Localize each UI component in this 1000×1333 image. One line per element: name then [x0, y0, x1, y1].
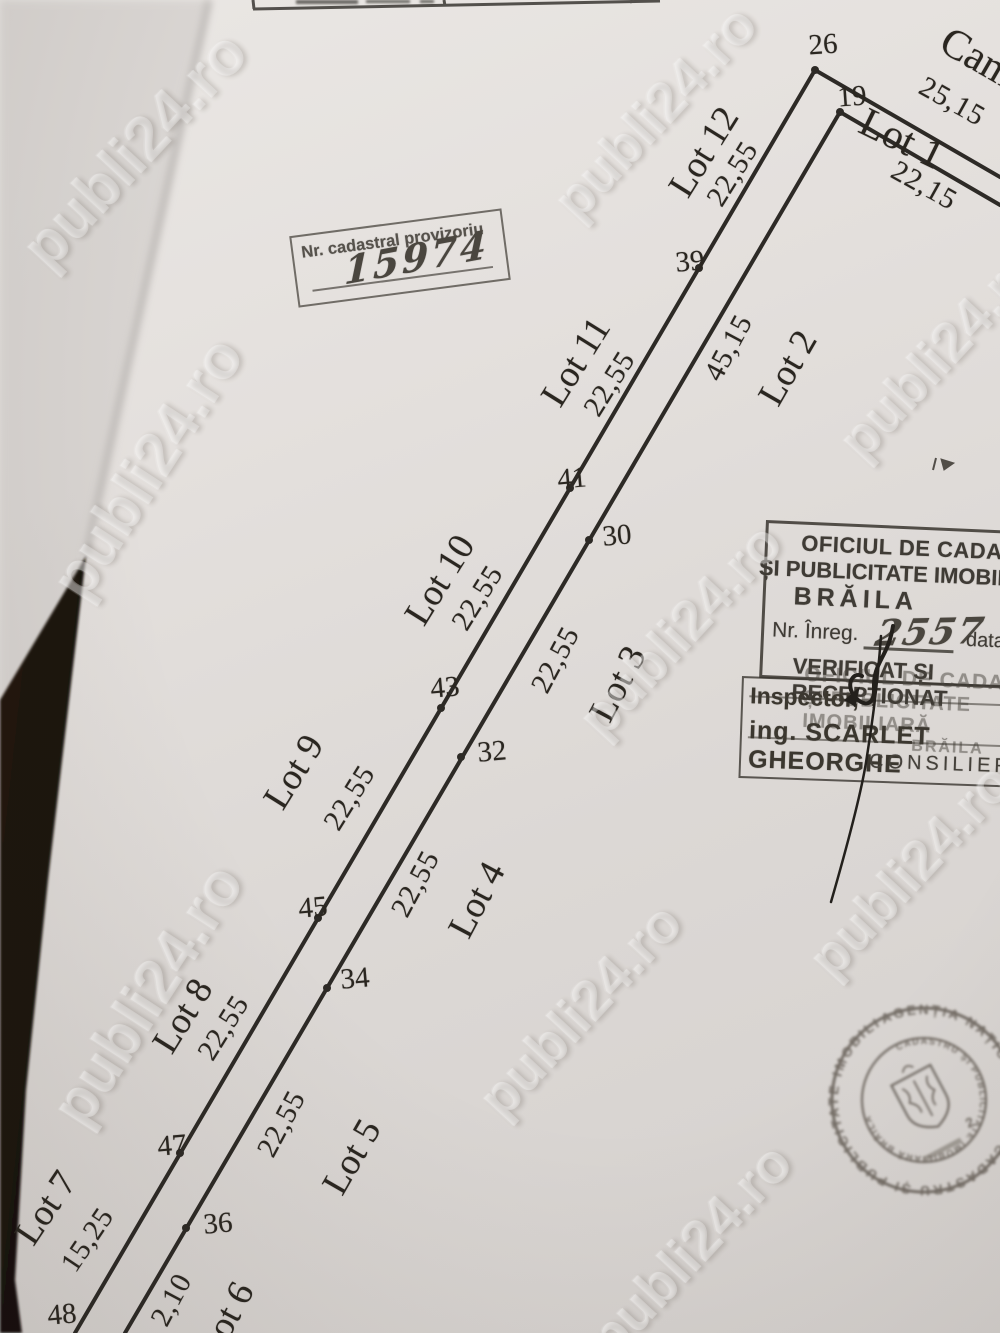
svg-text:AGENȚIA NAȚIONALĂ DE CADASTRU: AGENȚIA NAȚIONALĂ DE CADASTRU ȘI PUBLICI…: [0, 72, 1000, 1333]
round-stamp-outer-text: AGENȚIA NAȚIONALĂ DE CADASTRU ȘI PUBLICI…: [0, 72, 1000, 1333]
photographed-cadastral-plan: Lot 1 Lot 2 Lot 3 Lot 4 Lot 5 Lot 6 Lot …: [0, 0, 1000, 1333]
coat-of-arms: [887, 1056, 958, 1137]
round-agency-stamp: AGENȚIA NAȚIONALĂ DE CADASTRU ȘI PUBLICI…: [0, 0, 1000, 1333]
